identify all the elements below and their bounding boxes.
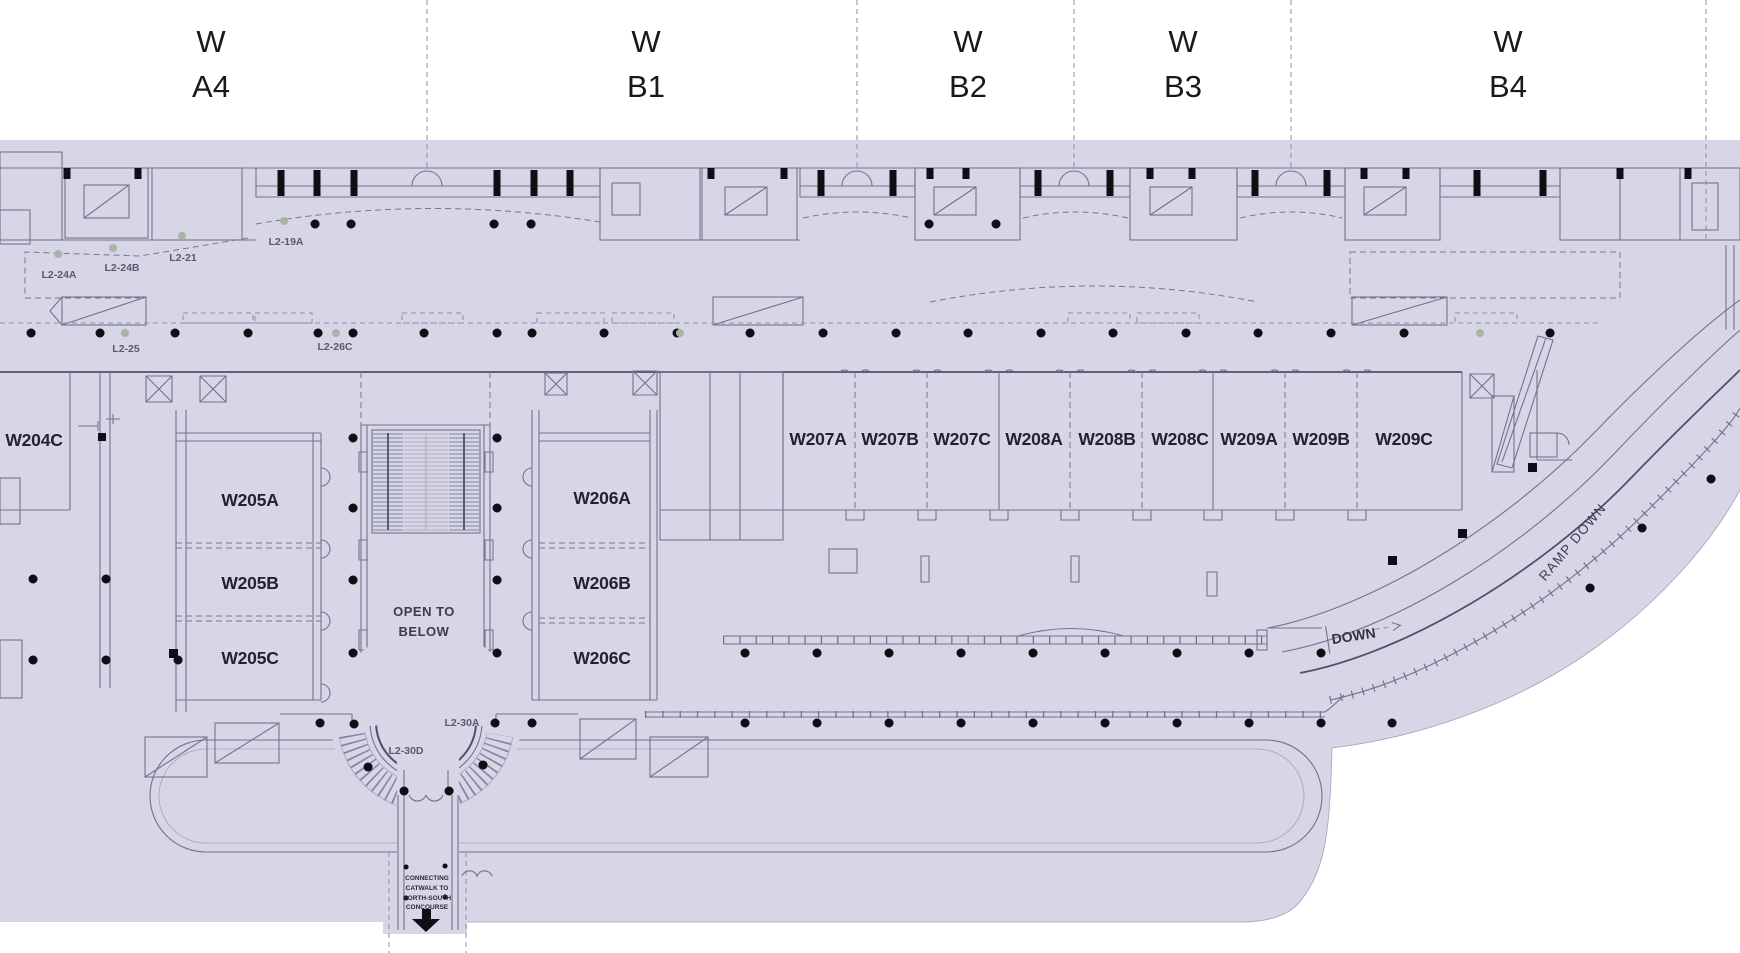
room-w207c: W207C	[933, 429, 991, 449]
room-w208b: W208B	[1078, 429, 1135, 449]
open-to-below-line1: OPEN TO	[393, 604, 455, 619]
svg-text:W207B: W207B	[861, 429, 918, 449]
room-w209a: W209A	[1220, 429, 1278, 449]
room-w204c: W204C	[5, 430, 63, 450]
tag-l2-19a: L2-19A	[268, 236, 303, 248]
catwalk-note-line2: CATWALK TO	[406, 885, 449, 892]
catwalk-note-line1: CONNECTING	[405, 875, 449, 882]
room-w206c: W206C	[573, 648, 631, 668]
grid-wa4-line2: A4	[192, 69, 230, 104]
svg-text:W207C: W207C	[933, 429, 991, 449]
room-w207b: W207B	[861, 429, 918, 449]
catwalk-note-line3: NORTH-SOUTH	[403, 895, 451, 902]
tag-l2-30a: L2-30A	[444, 717, 479, 729]
tag-l2-21: L2-21	[169, 252, 197, 264]
tag-l2-25: L2-25	[112, 343, 140, 355]
central-escalators	[372, 430, 480, 533]
grid-wb2-line1: W	[953, 24, 983, 59]
room-w209b: W209B	[1292, 429, 1349, 449]
room-w205b: W205B	[221, 573, 278, 593]
tag-l2-30d: L2-30D	[388, 745, 423, 757]
room-w205c: W205C	[221, 648, 279, 668]
svg-text:W209A: W209A	[1220, 429, 1278, 449]
svg-text:W208A: W208A	[1005, 429, 1063, 449]
svg-text:W206C: W206C	[573, 648, 631, 668]
tag-l2-24b: L2-24B	[104, 262, 139, 274]
floor-plan-viewport: CONNECTING CATWALK TO NORTH-SOUTH CONCOU…	[0, 0, 1740, 953]
svg-text:W206B: W206B	[573, 573, 630, 593]
grid-wb4-line1: W	[1493, 24, 1523, 59]
room-w206a: W206A	[573, 488, 631, 508]
room-w206b: W206B	[573, 573, 630, 593]
room-w208c: W208C	[1151, 429, 1209, 449]
svg-text:W204C: W204C	[5, 430, 63, 450]
svg-text:W205C: W205C	[221, 648, 279, 668]
svg-text:W207A: W207A	[789, 429, 847, 449]
grid-wb1-line2: B1	[627, 69, 665, 104]
room-w209c: W209C	[1375, 429, 1433, 449]
grid-wb3-line1: W	[1168, 24, 1198, 59]
grid-wb4-line2: B4	[1489, 69, 1527, 104]
floor-plan-canvas: CONNECTING CATWALK TO NORTH-SOUTH CONCOU…	[0, 0, 1740, 953]
svg-text:W206A: W206A	[573, 488, 631, 508]
grid-wa4-line1: W	[196, 24, 226, 59]
svg-text:W209B: W209B	[1292, 429, 1349, 449]
room-w208a: W208A	[1005, 429, 1063, 449]
room-w205a: W205A	[221, 490, 279, 510]
svg-text:W209C: W209C	[1375, 429, 1433, 449]
tag-l2-26c: L2-26C	[317, 341, 352, 353]
grid-wb2-line2: B2	[949, 69, 987, 104]
svg-text:W205B: W205B	[221, 573, 278, 593]
room-w207a: W207A	[789, 429, 847, 449]
grid-wb3-line2: B3	[1164, 69, 1202, 104]
svg-text:W205A: W205A	[221, 490, 279, 510]
svg-text:W208B: W208B	[1078, 429, 1135, 449]
tag-l2-24a: L2-24A	[41, 269, 76, 281]
open-to-below-line2: BELOW	[399, 624, 450, 639]
svg-text:W208C: W208C	[1151, 429, 1209, 449]
grid-wb1-line1: W	[631, 24, 661, 59]
